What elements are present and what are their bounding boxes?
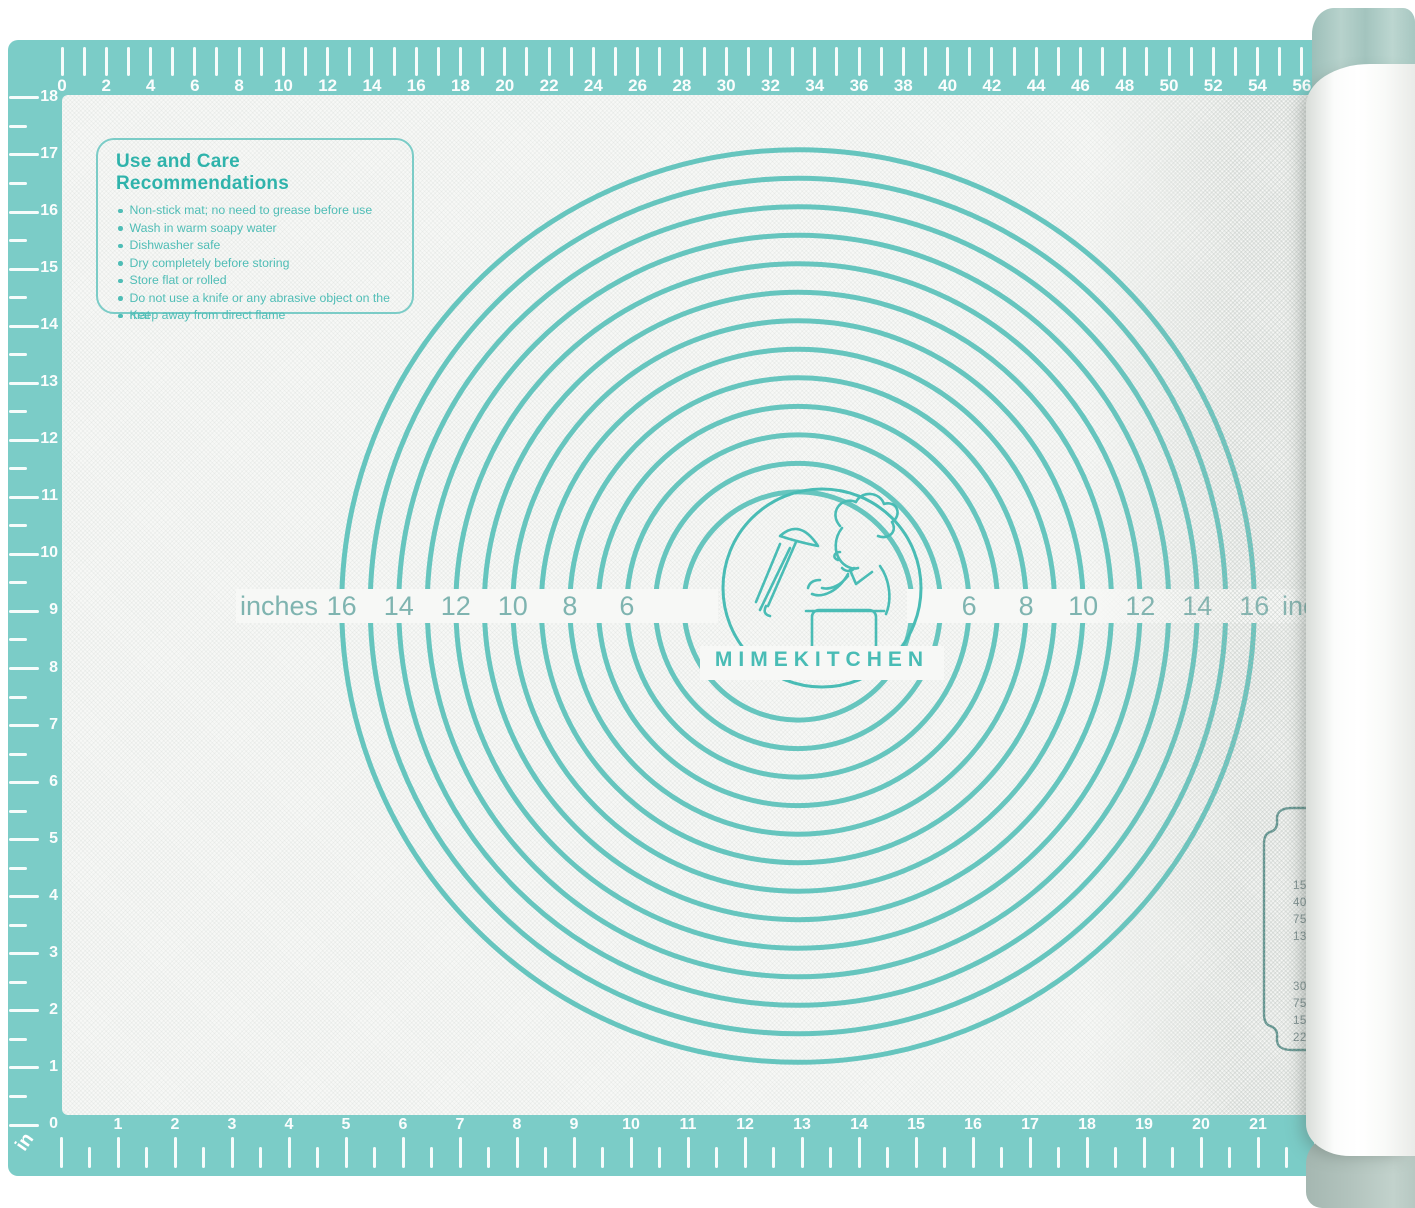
ruler-tick — [747, 47, 750, 76]
ruler-tick — [680, 47, 683, 76]
care-box-title: Use and Care Recommendations — [116, 151, 396, 195]
ruler-tick — [1257, 1137, 1260, 1168]
ruler-tick — [370, 47, 373, 76]
ruler-number: 15 — [30, 259, 58, 277]
ruler-number: 48 — [1105, 76, 1145, 96]
ruler-tick — [946, 47, 949, 76]
ruler-tick — [393, 47, 396, 76]
ruler-tick — [9, 125, 27, 128]
ruler-number: 12 — [308, 76, 348, 96]
ruler-tick — [835, 47, 838, 76]
ruler-tick — [9, 696, 27, 699]
ruler-tick — [83, 47, 86, 76]
ruler-tick — [570, 47, 573, 76]
ruler-number: 5 — [30, 830, 58, 848]
ruler-tick — [304, 47, 307, 76]
ruler-tick — [88, 1147, 91, 1168]
care-bullet-text: Store flat or rolled — [130, 272, 227, 290]
ruler-number: 8 — [497, 1116, 537, 1134]
ruler-tick — [1171, 1147, 1174, 1168]
ruler-number: 11 — [30, 487, 58, 505]
ruler-tick — [9, 810, 27, 813]
ruler-number: 20 — [1181, 1116, 1221, 1134]
mesh-texture-strip — [1090, 95, 1312, 1115]
ruler-tick — [373, 1147, 376, 1168]
ruler-tick — [592, 47, 595, 76]
ruler-tick — [658, 47, 661, 76]
ruler-number: 16 — [30, 202, 58, 220]
ruler-tick — [9, 867, 27, 870]
ruler-tick — [288, 1137, 291, 1168]
ruler-number: 38 — [883, 76, 923, 96]
ruler-number: 11 — [668, 1116, 708, 1134]
ruler-tick — [402, 1137, 405, 1168]
care-bullet-text: Keep away from direct flame — [130, 307, 286, 325]
ruler-tick — [614, 47, 617, 76]
ruler-tick — [459, 47, 462, 76]
ruler-number: 13 — [30, 373, 58, 391]
ruler-number: 28 — [662, 76, 702, 96]
roll-body — [1306, 64, 1415, 1156]
ruler-tick — [9, 353, 27, 356]
ruler-tick — [348, 47, 351, 76]
ruler-tick — [525, 47, 528, 76]
care-bullet: Dry completely before storing — [116, 255, 396, 273]
ruler-tick — [772, 1147, 775, 1168]
ruler-tick — [544, 1147, 547, 1168]
ruler-tick — [1200, 1137, 1203, 1168]
ruler-tick — [9, 581, 27, 584]
care-bullet-text: Non-stick mat; no need to grease before … — [130, 202, 373, 220]
ruler-number: 15 — [896, 1116, 936, 1134]
ruler-number: 10 — [611, 1116, 651, 1134]
ruler-tick — [548, 47, 551, 76]
ruler-number: 16 — [953, 1116, 993, 1134]
ruler-tick — [9, 981, 27, 984]
ruler-number: 30 — [706, 76, 746, 96]
ruler-tick — [105, 47, 108, 76]
ruler-number: 1 — [30, 1058, 58, 1076]
brand-logo-text: MIMEKITCHEN — [692, 648, 952, 672]
ruler-number: 6 — [383, 1116, 423, 1134]
care-bullet-text: Dishwasher safe — [130, 237, 221, 255]
care-bullet-text: Dry completely before storing — [130, 255, 290, 273]
chef-hand — [808, 580, 820, 588]
ruler-number: 3 — [30, 944, 58, 962]
ruler-tick — [924, 47, 927, 76]
ruler-tick — [1114, 1147, 1117, 1168]
ruler-tick — [658, 1147, 661, 1168]
bullet-dot — [118, 296, 123, 301]
bullet-dot — [118, 279, 123, 284]
ruler-number: 42 — [972, 76, 1012, 96]
ruler-number: 7 — [30, 716, 58, 734]
ruler-tick — [880, 47, 883, 76]
ruler-number: 12 — [30, 430, 58, 448]
ruler-tick — [260, 47, 263, 76]
ruler-tick — [1300, 47, 1303, 76]
ruler-tick — [9, 1038, 27, 1041]
ruler-tick — [744, 1137, 747, 1168]
ruler-number: 44 — [1016, 76, 1056, 96]
ruler-tick — [487, 1147, 490, 1168]
ruler-tick — [1029, 1137, 1032, 1168]
ruler-number: 6 — [30, 773, 58, 791]
ruler-tick — [1013, 47, 1016, 76]
ruler-number: 52 — [1193, 76, 1233, 96]
care-bullet-text: Wash in warm soapy water — [130, 220, 277, 238]
ruler-tick — [1234, 47, 1237, 76]
care-bullet: Non-stick mat; no need to grease before … — [116, 202, 396, 220]
ruler-number: 40 — [928, 76, 968, 96]
chef-collar — [850, 570, 872, 584]
ruler-tick — [943, 1147, 946, 1168]
ruler-number: 7 — [440, 1116, 480, 1134]
ruler-tick — [902, 47, 905, 76]
ruler-tick — [171, 47, 174, 76]
ruler-tick — [9, 296, 27, 299]
ruler-number: 21 — [1238, 1116, 1278, 1134]
ruler-number: 16 — [396, 76, 436, 96]
ruler-number: 8 — [30, 659, 58, 677]
ruler-tick — [9, 924, 27, 927]
ruler-tick — [259, 1147, 262, 1168]
care-bullet: Wash in warm soapy water — [116, 220, 396, 238]
ruler-number: 8 — [219, 76, 259, 96]
ruler-number: 24 — [573, 76, 613, 96]
ruler-tick — [1256, 47, 1259, 76]
ruler-number: 3 — [212, 1116, 252, 1134]
ruler-number: 26 — [618, 76, 658, 96]
ruler-tick — [1190, 47, 1193, 76]
ruler-tick — [238, 47, 241, 76]
ruler-number: 18 — [441, 76, 481, 96]
ruler-tick — [516, 1137, 519, 1168]
ruler-tick — [1145, 47, 1148, 76]
ruler-number: 20 — [485, 76, 525, 96]
ruler-tick — [117, 1137, 120, 1168]
ruler-number: 12 — [725, 1116, 765, 1134]
ruler-number: 6 — [175, 76, 215, 96]
pastry-mat-product-image: inches inches 16141210866810121416 MIMEK… — [0, 0, 1415, 1208]
ruler-tick — [636, 47, 639, 76]
ruler-number: 50 — [1149, 76, 1189, 96]
ruler-number: 14 — [839, 1116, 879, 1134]
ruler-tick — [9, 182, 27, 185]
ruler-tick — [968, 47, 971, 76]
ruler-tick — [858, 1137, 861, 1168]
ruler-tick — [174, 1137, 177, 1168]
care-bullet: Store flat or rolled — [116, 272, 396, 290]
bullet-dot — [118, 209, 123, 214]
ruler-number: 9 — [30, 601, 58, 619]
ruler-tick — [687, 1137, 690, 1168]
ruler-tick — [231, 1137, 234, 1168]
ruler-tick — [1143, 1137, 1146, 1168]
ruler-tick — [1035, 47, 1038, 76]
care-box: Use and Care Recommendations Non-stick m… — [96, 138, 414, 314]
ruler-tick — [316, 1147, 319, 1168]
ruler-tick — [1101, 47, 1104, 76]
ruler-number: 14 — [30, 316, 58, 334]
ruler-tick — [1228, 1147, 1231, 1168]
ruler-tick — [1123, 47, 1126, 76]
ruler-tick — [801, 1137, 804, 1168]
ruler-tick — [791, 47, 794, 76]
ruler-tick — [573, 1137, 576, 1168]
ruler-tick — [972, 1137, 975, 1168]
ruler-number: 54 — [1238, 76, 1278, 96]
ruler-tick — [630, 1137, 633, 1168]
ruler-tick — [481, 47, 484, 76]
bullet-dot — [118, 226, 123, 231]
care-bullet: Dishwasher safe — [116, 237, 396, 255]
ruler-tick — [715, 1147, 718, 1168]
ruler-number: 10 — [263, 76, 303, 96]
ruler-number: 5 — [326, 1116, 366, 1134]
ruler-number: 17 — [1010, 1116, 1050, 1134]
ruler-tick — [1168, 47, 1171, 76]
ruler-tick — [1000, 1147, 1003, 1168]
ruler-tick — [503, 47, 506, 76]
ruler-number: 22 — [529, 76, 569, 96]
ruler-tick — [990, 47, 993, 76]
ruler-number: 18 — [30, 88, 58, 106]
ruler-tick — [9, 1095, 27, 1098]
ruler-tick — [886, 1147, 889, 1168]
ruler-tick — [1079, 47, 1082, 76]
ruler-tick — [1285, 1147, 1288, 1168]
ruler-tick — [601, 1147, 604, 1168]
ruler-number: 2 — [155, 1116, 195, 1134]
ruler-tick — [703, 47, 706, 76]
ruler-tick — [193, 47, 196, 76]
ruler-tick — [813, 47, 816, 76]
ruler-number: 17 — [30, 145, 58, 163]
ruler-number: 46 — [1060, 76, 1100, 96]
bullet-dot — [118, 261, 123, 266]
ruler-tick — [282, 47, 285, 76]
ruler-tick — [61, 47, 64, 76]
ruler-number: 19 — [1124, 1116, 1164, 1134]
ruler-tick — [858, 47, 861, 76]
ruler-number: 13 — [782, 1116, 822, 1134]
ruler-number: 10 — [30, 544, 58, 562]
ruler-tick — [725, 47, 728, 76]
ruler-tick — [9, 467, 27, 470]
ruler-number: 2 — [30, 1001, 58, 1019]
ruler-tick — [415, 47, 418, 76]
ruler-tick — [1212, 47, 1215, 76]
ruler-tick — [459, 1137, 462, 1168]
care-bullet-list: Non-stick mat; no need to grease before … — [116, 202, 396, 325]
ruler-tick — [430, 1147, 433, 1168]
ruler-tick — [915, 1137, 918, 1168]
ruler-number: 9 — [554, 1116, 594, 1134]
ruler-tick — [127, 47, 130, 76]
ruler-number: 32 — [750, 76, 790, 96]
ruler-tick — [326, 47, 329, 76]
ruler-tick — [145, 1147, 148, 1168]
ruler-tick — [9, 410, 27, 413]
ruler-tick — [9, 239, 27, 242]
ruler-number: 2 — [86, 76, 126, 96]
ruler-tick — [9, 753, 27, 756]
ruler-number: 4 — [131, 76, 171, 96]
bullet-dot — [118, 314, 123, 319]
ruler-tick — [149, 47, 152, 76]
ruler-tick — [1057, 1147, 1060, 1168]
umbrella-cone — [756, 529, 818, 616]
ruler-tick — [1086, 1137, 1089, 1168]
care-bullet: Do not use a knife or any abrasive objec… — [116, 290, 396, 308]
ruler-tick — [829, 1147, 832, 1168]
ruler-tick — [202, 1147, 205, 1168]
ruler-tick — [1057, 47, 1060, 76]
ruler-tick — [60, 1137, 63, 1168]
ruler-number: 34 — [795, 76, 835, 96]
ruler-tick — [9, 524, 27, 527]
ruler-number: 4 — [269, 1116, 309, 1134]
bullet-dot — [118, 244, 123, 249]
ruler-number: 1 — [98, 1116, 138, 1134]
ruler-number: 36 — [839, 76, 879, 96]
chef-face — [834, 528, 858, 571]
ruler-number: 14 — [352, 76, 392, 96]
ruler-tick — [437, 47, 440, 76]
ruler-number: 4 — [30, 887, 58, 905]
ruler-tick — [769, 47, 772, 76]
ruler-tick — [1278, 47, 1281, 76]
ruler-number: 18 — [1067, 1116, 1107, 1134]
ruler-tick — [345, 1137, 348, 1168]
